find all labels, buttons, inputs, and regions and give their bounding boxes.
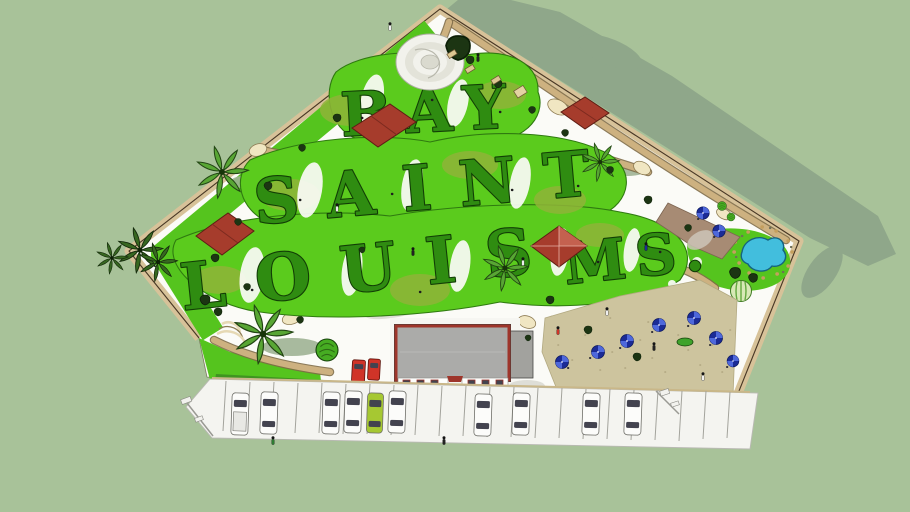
person [412, 247, 415, 255]
parked-car [322, 392, 340, 435]
parked-car-pickup [231, 393, 249, 436]
person [443, 436, 446, 444]
model-viewport: BAY SAINT LOUIS MS. [0, 0, 910, 512]
person [645, 242, 648, 250]
parked-car-green [366, 393, 383, 434]
parked-car [260, 392, 278, 435]
patio-umbrella [621, 335, 634, 348]
person [653, 342, 656, 350]
person [389, 22, 392, 30]
parked-car [474, 394, 492, 437]
person [557, 326, 560, 334]
parked-car [388, 391, 406, 434]
patio-umbrella [710, 332, 723, 345]
service-vehicle [351, 360, 365, 383]
patio-umbrella [592, 346, 605, 359]
parked-car [512, 393, 530, 436]
parked-car [624, 393, 642, 436]
clubhouse-roof [396, 326, 509, 380]
small-tree [727, 213, 735, 221]
patio-umbrella [713, 225, 725, 237]
person [272, 436, 275, 444]
service-vehicle [367, 359, 380, 381]
patio-umbrella [697, 207, 709, 219]
person [336, 203, 339, 211]
topiary-figure [677, 338, 693, 346]
person [702, 372, 705, 380]
patio-umbrella [688, 312, 701, 325]
patio-umbrella [653, 319, 666, 332]
parked-car [344, 391, 362, 434]
small-tree [718, 202, 727, 211]
patio-umbrella [727, 355, 739, 367]
person [477, 53, 480, 61]
person [522, 257, 525, 265]
spiral-ring [421, 55, 439, 69]
patio-umbrella [556, 356, 569, 369]
person [606, 307, 609, 315]
dome-tree [316, 339, 338, 361]
mini-golf-3d-render: BAY SAINT LOUIS MS. [0, 0, 910, 512]
parked-car [582, 393, 600, 436]
